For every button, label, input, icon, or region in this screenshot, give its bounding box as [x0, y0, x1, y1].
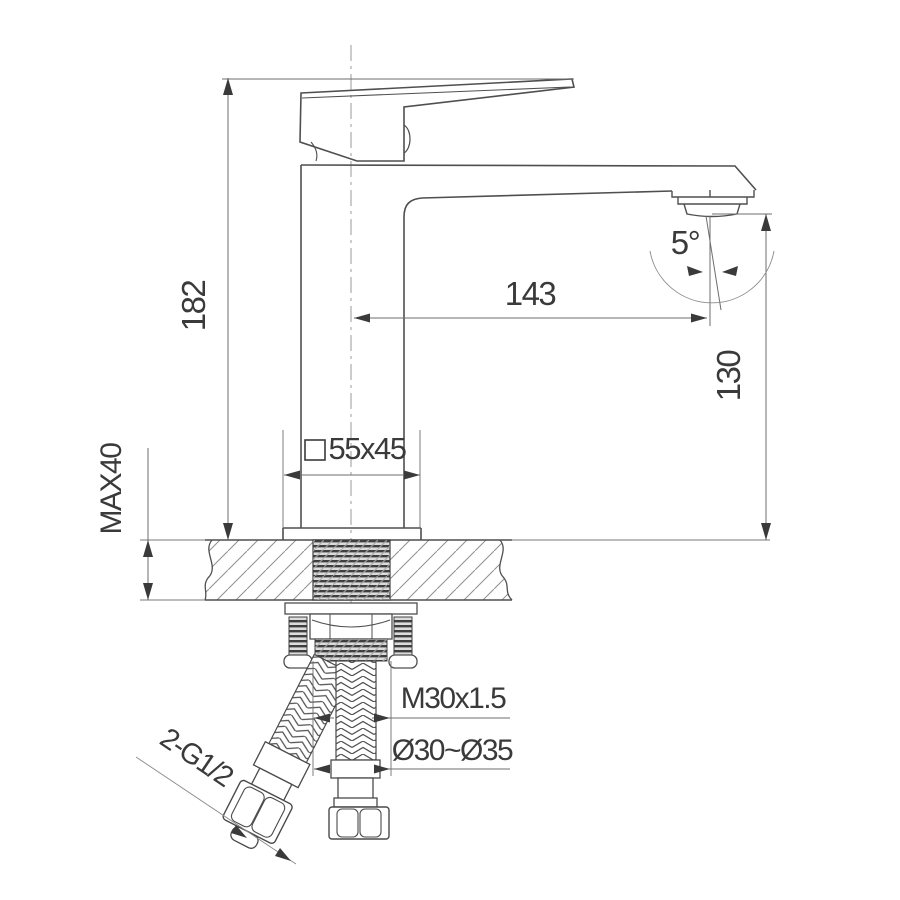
dim-label-55x45: 55x45: [329, 431, 406, 466]
base-plate: [283, 528, 421, 540]
dim-label-182: 182: [175, 281, 212, 332]
spout-underside: [404, 191, 672, 217]
dim-outlet-height: 130: [710, 214, 772, 540]
dim-label-143: 143: [505, 275, 556, 312]
deck-left-hatch: [205, 540, 313, 600]
dim-label-max40: MAX40: [95, 443, 128, 535]
square-section-icon: [305, 440, 325, 460]
handle-pivot-curve: [311, 142, 317, 161]
mounting-stud-left: [284, 617, 312, 668]
spout-aerator: [672, 190, 754, 217]
hose-nut-vertical: [329, 807, 389, 839]
washer-plate: [285, 603, 417, 614]
faucet-drawing: 182 MAX40 143 130 5° 55x4: [0, 0, 900, 900]
mounting-shank: [313, 540, 390, 600]
dim-label-5deg: 5°: [671, 224, 700, 261]
dim-label-hole: Ø30~Ø35: [392, 734, 513, 767]
cartridge-dome: [404, 125, 410, 153]
dim-label-g12: 2-G1/2: [154, 722, 238, 793]
hose-flange: [334, 798, 377, 807]
handle-outline: [300, 79, 574, 161]
body-top-edge: [301, 165, 756, 190]
shank-thread-below-nut: [315, 639, 387, 661]
faucet-handle: [300, 79, 574, 161]
dim-label-m30: M30x1.5: [401, 682, 506, 715]
hose-braid: [336, 661, 376, 760]
annotation-stream-angle: 5°: [650, 216, 774, 326]
dim-spout-reach: 143: [354, 275, 707, 323]
dim-label-130: 130: [710, 350, 747, 402]
supply-hose-vertical: [329, 661, 389, 839]
hose-ferrule: [331, 760, 380, 778]
locknut: [310, 614, 392, 639]
deck-right-hatch: [390, 540, 512, 600]
technical-drawing-page: 182 MAX40 143 130 5° 55x4: [0, 0, 900, 900]
dim-deck-thickness: MAX40: [95, 443, 153, 600]
hose-neck: [338, 778, 373, 799]
mounting-stud-right: [389, 617, 417, 668]
faucet-body-spout: [283, 165, 756, 540]
countertop-section: [140, 540, 770, 600]
mounting-hardware: [284, 603, 417, 668]
